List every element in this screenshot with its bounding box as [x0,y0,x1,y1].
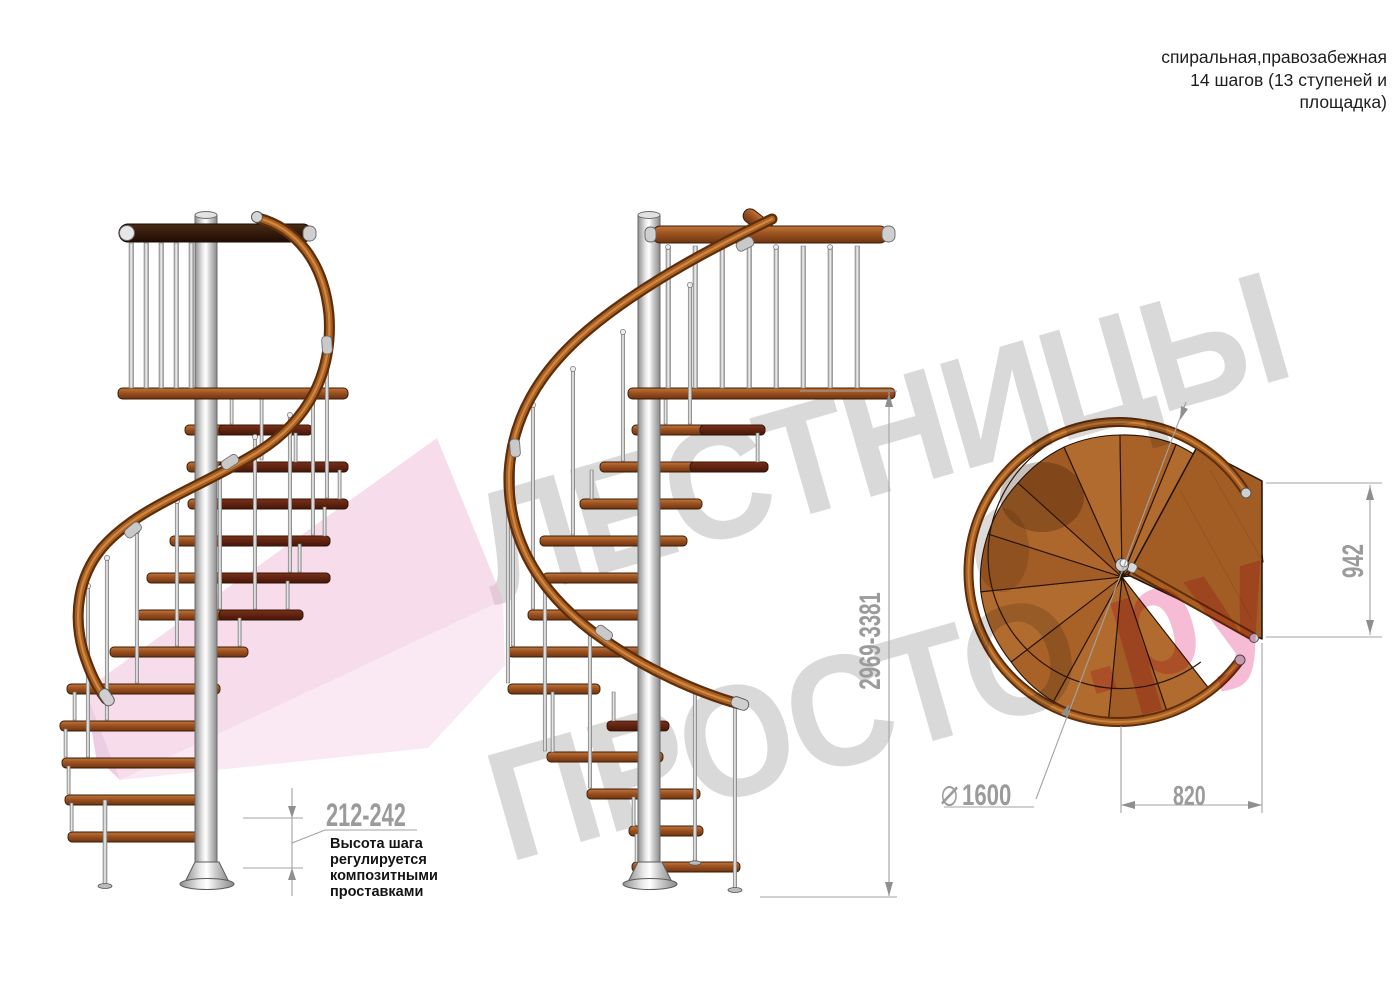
diameter-number: 1600 [962,779,1011,813]
platform-board [628,388,895,399]
top-rail [652,226,888,243]
pole-base [623,879,677,890]
foot-disc [689,861,701,865]
foot-disc [728,888,742,893]
dimension-diameter [944,402,1188,807]
rail-end-cap [882,226,895,242]
title-line: 14 шагов (13 ступеней и [1161,69,1387,92]
central-pole [180,212,234,890]
note-line: Высота шага [330,836,438,852]
platform-railing [645,206,895,388]
step-height-value: 212-242 [326,797,406,834]
platform-side-value: 942 [1337,520,1371,602]
side-elevation-middle [505,206,895,892]
note-line: регулируется [330,852,438,868]
step-height-note: Высота шага регулируется композитными пр… [330,836,438,900]
title-line: спиральная,правозабежная [1161,46,1387,69]
drawing-title: спиральная,правозабежная 14 шагов (13 ст… [1161,46,1387,114]
rail-end-cap [645,227,656,242]
handrail-sleeve [509,439,520,458]
handrail-end-cap [729,695,750,711]
platform-width-value: 820 [1173,780,1206,812]
technical-drawing-canvas: ЛЕСТНИЦЫ ПРОСТО.ру [0,0,1400,1000]
title-line: площадка) [1161,91,1387,114]
foot-disc [98,884,112,889]
handrail-start-cap [252,212,263,223]
pole-base [180,879,234,890]
note-line: композитными [330,868,438,884]
note-line: проставками [330,884,438,900]
rail-end-cap [303,226,316,241]
drawing-layer [0,0,1400,1000]
total-height-value: 2969-3381 [854,587,888,696]
diameter-icon [942,786,957,806]
rail-end-cap [120,226,135,241]
diameter-value: 1600 [942,779,1011,813]
handrail-sleeve [321,336,332,355]
